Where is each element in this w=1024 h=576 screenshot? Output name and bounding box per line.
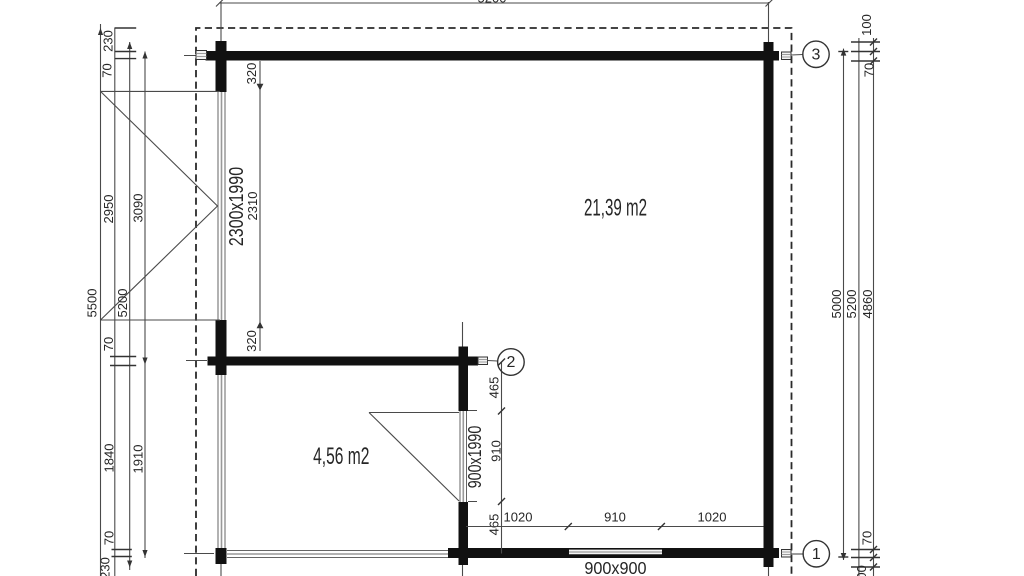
svg-text:465: 465	[487, 514, 502, 536]
svg-text:3: 3	[812, 46, 821, 63]
svg-text:3090: 3090	[130, 194, 145, 223]
svg-text:5200: 5200	[478, 0, 507, 6]
svg-text:70: 70	[861, 63, 876, 77]
svg-text:2310: 2310	[245, 192, 260, 221]
svg-text:900x1990: 900x1990	[466, 426, 486, 488]
svg-text:5200: 5200	[844, 290, 859, 319]
svg-text:2950: 2950	[101, 195, 116, 224]
svg-text:70: 70	[100, 63, 115, 77]
svg-text:4,56 m2: 4,56 m2	[313, 444, 369, 470]
svg-text:910: 910	[488, 440, 503, 462]
svg-text:2: 2	[506, 354, 515, 371]
svg-text:1: 1	[812, 546, 821, 563]
svg-text:320: 320	[244, 330, 259, 352]
svg-text:70: 70	[102, 531, 117, 545]
svg-text:230: 230	[101, 30, 116, 52]
svg-text:1020: 1020	[698, 510, 727, 525]
svg-text:1020: 1020	[504, 510, 533, 525]
svg-text:320: 320	[244, 63, 259, 85]
svg-text:5200: 5200	[115, 289, 130, 318]
svg-text:100: 100	[854, 565, 869, 576]
svg-text:70: 70	[859, 531, 874, 545]
svg-text:465: 465	[487, 377, 502, 399]
svg-text:900x900: 900x900	[584, 558, 646, 576]
svg-text:5000: 5000	[829, 290, 844, 319]
svg-text:1910: 1910	[131, 445, 146, 474]
svg-text:100: 100	[859, 14, 874, 36]
svg-text:70: 70	[101, 337, 116, 351]
svg-text:4860: 4860	[860, 290, 875, 319]
svg-text:5500: 5500	[84, 289, 99, 318]
svg-text:230: 230	[98, 557, 113, 576]
svg-text:21,39 m2: 21,39 m2	[584, 195, 647, 221]
svg-text:910: 910	[604, 510, 626, 525]
svg-text:1840: 1840	[102, 444, 117, 473]
